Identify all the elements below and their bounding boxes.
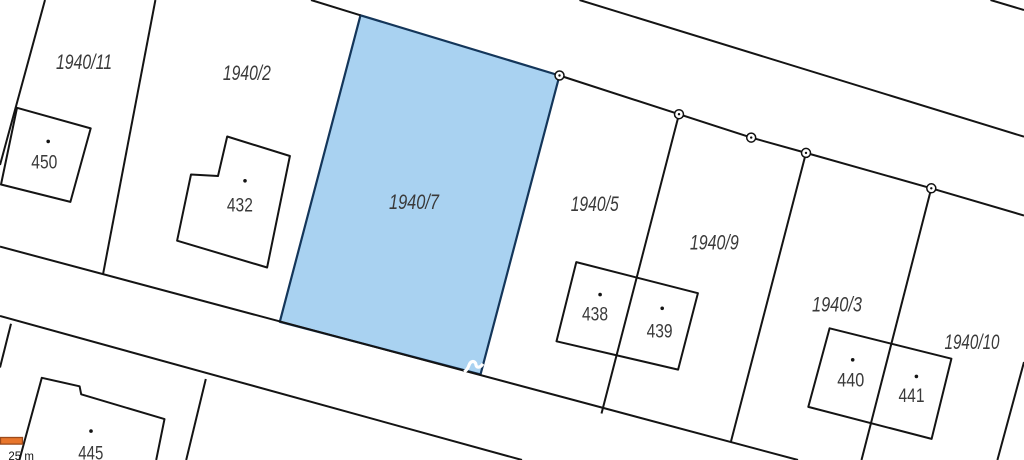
- svg-text:1940/5: 1940/5: [571, 193, 619, 216]
- svg-text:1940/3: 1940/3: [812, 294, 862, 317]
- svg-text:441: 441: [899, 386, 925, 407]
- svg-text:1940/7: 1940/7: [389, 191, 440, 214]
- svg-text:1940/2: 1940/2: [223, 62, 271, 85]
- svg-text:25 m: 25 m: [8, 451, 34, 460]
- svg-text:445: 445: [78, 444, 103, 460]
- svg-text:439: 439: [647, 322, 673, 343]
- svg-text:1940/9: 1940/9: [690, 232, 739, 255]
- svg-text:1940/10: 1940/10: [945, 331, 1000, 354]
- svg-text:432: 432: [227, 196, 253, 217]
- svg-text:440: 440: [837, 371, 864, 392]
- svg-text:438: 438: [582, 305, 608, 326]
- svg-text:1940/11: 1940/11: [56, 51, 112, 74]
- svg-text:450: 450: [31, 153, 57, 174]
